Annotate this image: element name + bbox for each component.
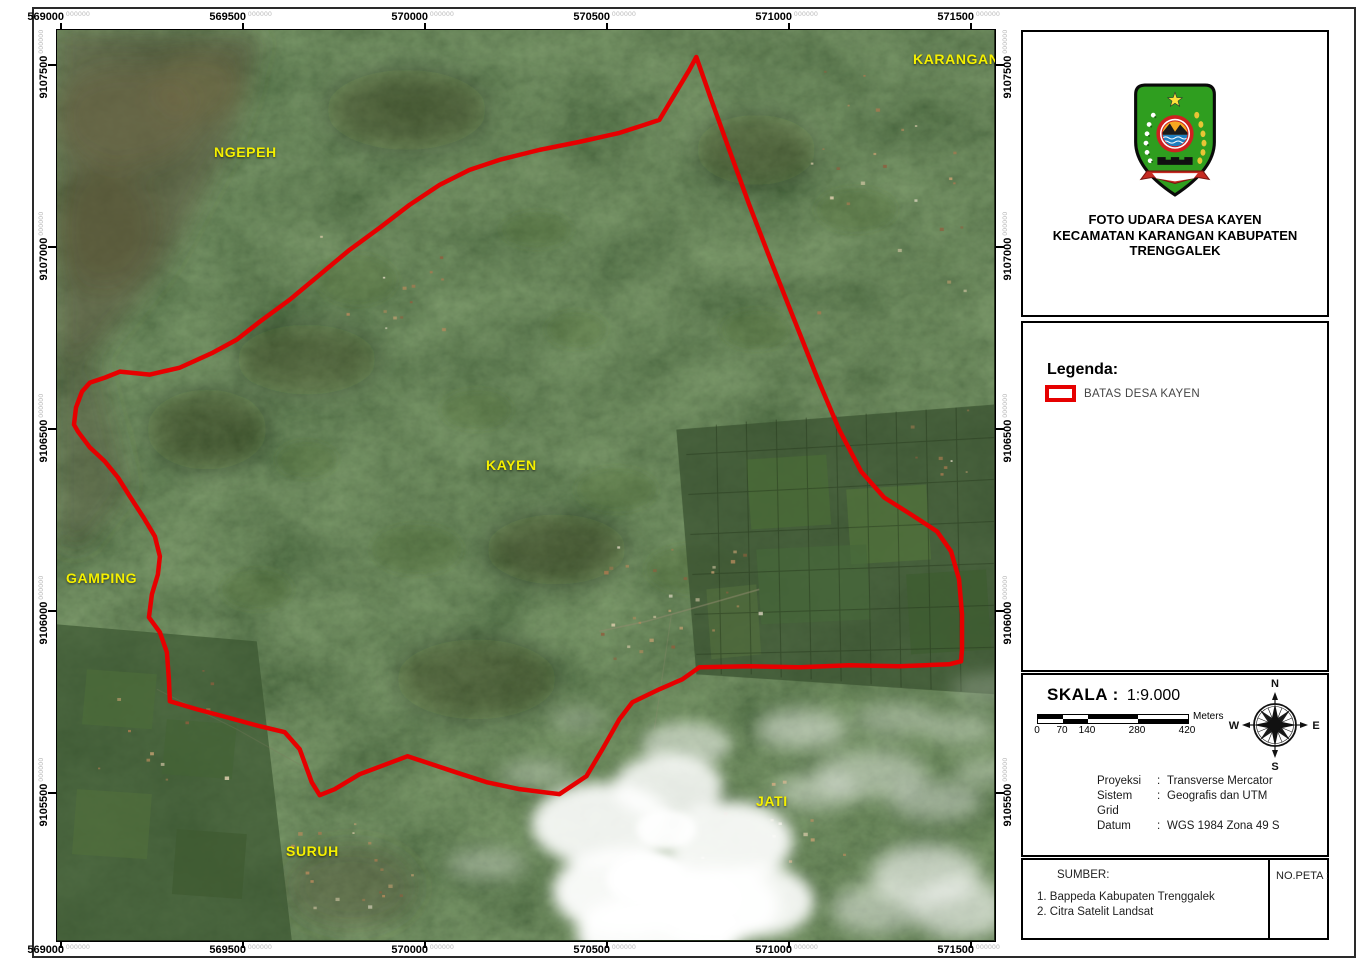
- grid-easting-label-top: 569000000000: [27, 11, 90, 23]
- grid-tick-right: [996, 610, 1004, 612]
- grid-tick-top: [788, 23, 790, 29]
- boundary-swatch: [1045, 385, 1076, 402]
- farm-fields-east: [676, 405, 994, 695]
- scalebar-tick-label: 420: [1179, 725, 1196, 736]
- grid-easting-label-top: 570000000000: [391, 11, 454, 23]
- grid-easting-label-bottom: 571000000000: [755, 944, 818, 956]
- grid-tick-bottom: [424, 942, 426, 948]
- map-sheet: KARANGANNGEPEHKAYENGAMPINGSURUHJATI: [0, 0, 1366, 966]
- projection-row-value: Transverse Mercator: [1167, 774, 1273, 789]
- grid-tick-left: [48, 64, 56, 66]
- satellite-imagery: [57, 30, 994, 940]
- compass-north-label: N: [1271, 678, 1279, 690]
- source-item: 1. Bappeda Kabupaten Trenggalek: [1037, 890, 1215, 905]
- projection-row: Datum:WGS 1984 Zona 49 S: [1097, 819, 1280, 834]
- source-item: 2. Citra Satelit Landsat: [1037, 905, 1215, 920]
- projection-row-separator: :: [1157, 819, 1167, 834]
- map-title-line2: KECAMATAN KARANGAN KABUPATEN TRENGGALEK: [1023, 228, 1327, 259]
- grid-tick-top: [242, 23, 244, 29]
- scalebar-tick-label: 0: [1034, 725, 1040, 736]
- scalebar-tick-label: 280: [1129, 725, 1146, 736]
- legend-heading: Legenda:: [1047, 361, 1118, 379]
- scale-ratio: 1:9.000: [1127, 687, 1180, 705]
- grid-easting-label-bottom: 569500000000: [209, 944, 272, 956]
- grid-tick-right: [996, 792, 1004, 794]
- grid-tick-top: [970, 23, 972, 29]
- scalebar-tick-label: 70: [1056, 725, 1067, 736]
- grid-tick-bottom: [242, 942, 244, 948]
- grid-easting-label-top: 571500000000: [937, 11, 1000, 23]
- legend-item-label: BATAS DESA KAYEN: [1084, 388, 1200, 400]
- grid-tick-left: [48, 792, 56, 794]
- projection-row-separator: :: [1157, 789, 1167, 819]
- compass-rose: N S W E: [1225, 675, 1325, 775]
- scale-bar: [1037, 714, 1189, 724]
- legend-items: BATAS DESA KAYEN: [1045, 385, 1317, 410]
- grid-easting-label-bottom: 570500000000: [573, 944, 636, 956]
- projection-info: Proyeksi:Transverse MercatorSistem Grid:…: [1097, 774, 1280, 834]
- legend-item: BATAS DESA KAYEN: [1045, 385, 1317, 402]
- projection-row: Sistem Grid:Geografis dan UTM: [1097, 789, 1280, 819]
- grid-tick-top: [424, 23, 426, 29]
- grid-tick-top: [60, 23, 62, 29]
- grid-tick-left: [48, 246, 56, 248]
- projection-row-label: Sistem Grid: [1097, 789, 1157, 819]
- grid-easting-label-bottom: 569000000000: [27, 944, 90, 956]
- projection-row-value: Geografis dan UTM: [1167, 789, 1267, 819]
- grid-tick-right: [996, 64, 1004, 66]
- grid-tick-bottom: [788, 942, 790, 948]
- projection-row: Proyeksi:Transverse Mercator: [1097, 774, 1280, 789]
- title-box: FOTO UDARA DESA KAYEN KECAMATAN KARANGAN…: [1021, 30, 1329, 317]
- map-number-cell: NO.PETA :: [1268, 860, 1331, 938]
- source-heading: SUMBER:: [1057, 869, 1109, 881]
- scale-heading: SKALA :: [1047, 685, 1119, 705]
- map-title-line1: FOTO UDARA DESA KAYEN: [1023, 212, 1327, 228]
- map-canvas: KARANGANNGEPEHKAYENGAMPINGSURUHJATI: [56, 29, 996, 942]
- compass-south-label: S: [1271, 761, 1278, 773]
- grid-easting-label-bottom: 570000000000: [391, 944, 454, 956]
- grid-tick-bottom: [60, 942, 62, 948]
- projection-row-label: Datum: [1097, 819, 1157, 834]
- grid-tick-bottom: [970, 942, 972, 948]
- farm-fields-southwest: [57, 624, 292, 940]
- grid-easting-label-bottom: 571500000000: [937, 944, 1000, 956]
- legend-box: Legenda: BATAS DESA KAYEN: [1021, 321, 1329, 672]
- projection-row-separator: :: [1157, 774, 1167, 789]
- trenggalek-coat-of-arms-logo: [1128, 82, 1222, 198]
- scale-statement: SKALA : 1:9.000: [1047, 685, 1180, 705]
- grid-tick-left: [48, 610, 56, 612]
- scale-tick-labels: 070140280420: [1023, 725, 1223, 737]
- scale-unit-label: Meters: [1193, 711, 1224, 722]
- grid-tick-right: [996, 246, 1004, 248]
- source-box: SUMBER: 1. Bappeda Kabupaten Trenggalek2…: [1021, 858, 1329, 940]
- scale-box: SKALA : 1:9.000 Meters 070140280420: [1021, 673, 1329, 857]
- compass-east-label: E: [1312, 720, 1319, 732]
- grid-tick-right: [996, 428, 1004, 430]
- grid-easting-label-top: 571000000000: [755, 11, 818, 23]
- projection-row-label: Proyeksi: [1097, 774, 1157, 789]
- grid-easting-label-top: 570500000000: [573, 11, 636, 23]
- grid-tick-top: [606, 23, 608, 29]
- map-number-label: NO.PETA :: [1276, 870, 1329, 882]
- scalebar-tick-label: 140: [1079, 725, 1096, 736]
- grid-tick-bottom: [606, 942, 608, 948]
- grid-tick-left: [48, 428, 56, 430]
- map-title: FOTO UDARA DESA KAYEN KECAMATAN KARANGAN…: [1023, 212, 1327, 259]
- source-items: 1. Bappeda Kabupaten Trenggalek2. Citra …: [1037, 890, 1215, 920]
- grid-easting-label-top: 569500000000: [209, 11, 272, 23]
- projection-row-value: WGS 1984 Zona 49 S: [1167, 819, 1280, 834]
- compass-west-label: W: [1229, 720, 1240, 732]
